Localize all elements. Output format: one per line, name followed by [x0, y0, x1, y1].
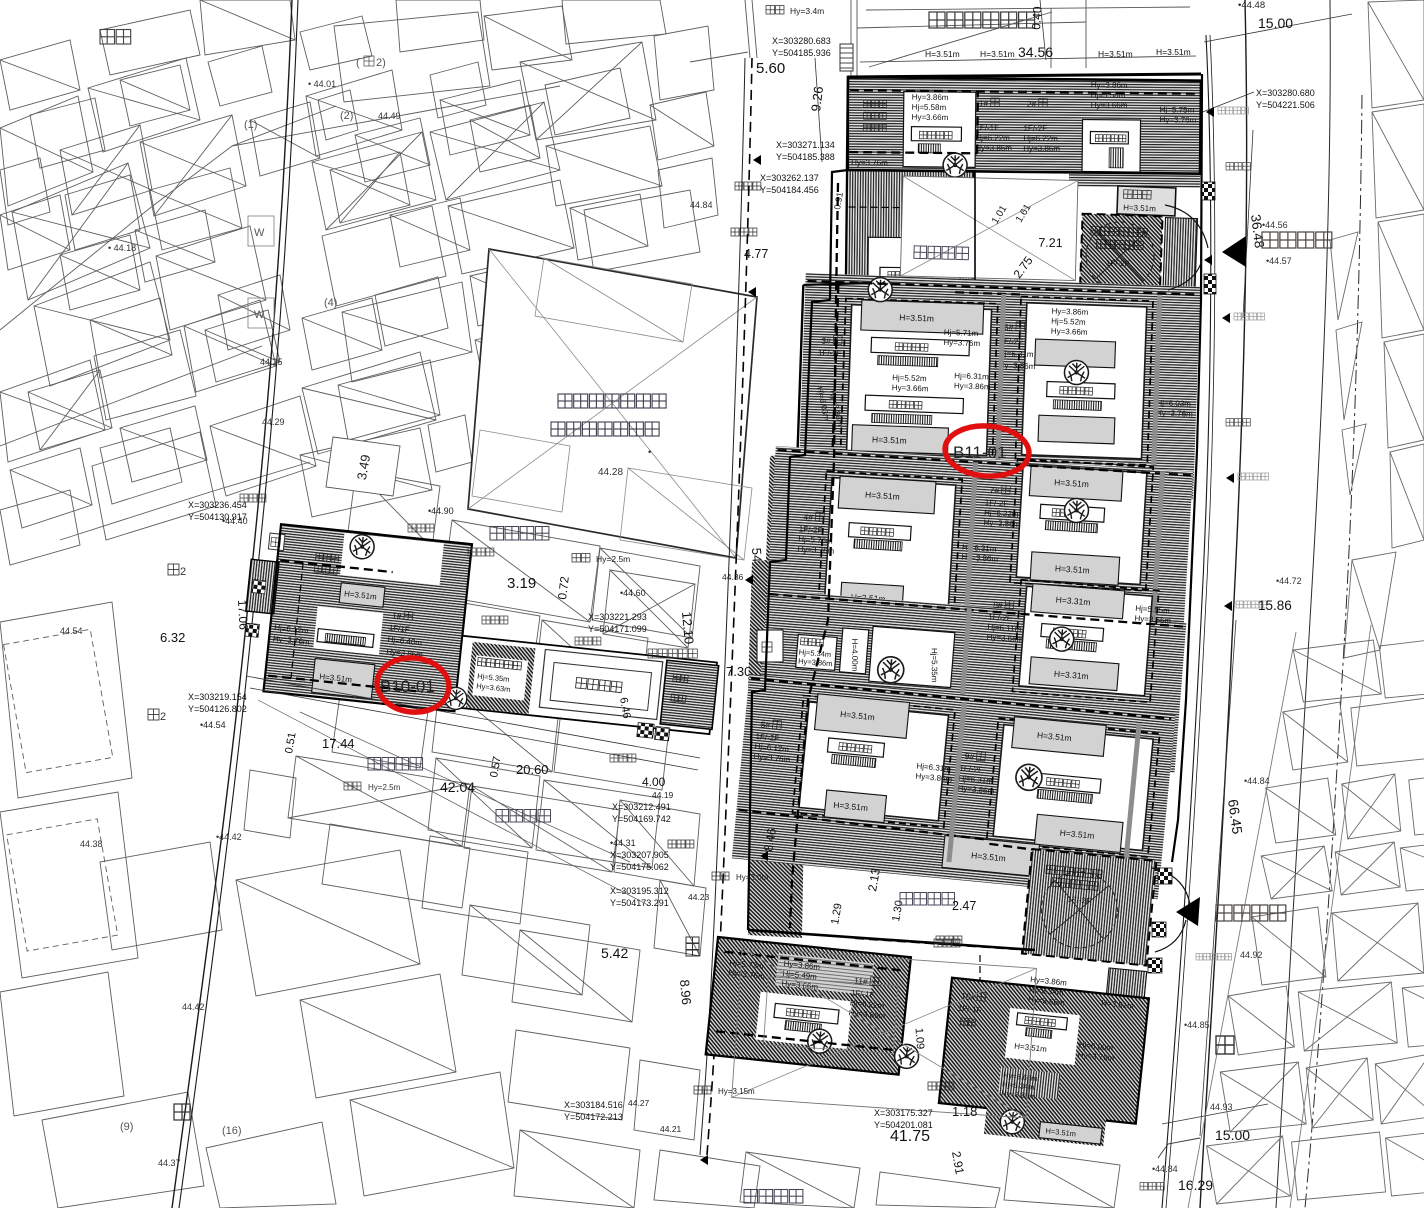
svg-text:44.21: 44.21 — [660, 1124, 682, 1134]
svg-text:1F/-2F: 1F/-2F — [985, 498, 1009, 508]
svg-text:X=303262.137: X=303262.137 — [760, 173, 819, 183]
svg-text:• 44.01: • 44.01 — [308, 79, 336, 89]
svg-text:(: ( — [356, 57, 360, 69]
svg-text:5.42: 5.42 — [601, 945, 628, 961]
svg-text:H=3.51m: H=3.51m — [1054, 477, 1089, 489]
svg-text:X=303280.680: X=303280.680 — [1256, 88, 1315, 98]
svg-text:44.92: 44.92 — [1240, 950, 1263, 960]
svg-text:Y=504221.506: Y=504221.506 — [1256, 100, 1315, 110]
svg-text:42.04: 42.04 — [440, 779, 475, 795]
svg-text:2#: 2# — [1027, 99, 1037, 109]
svg-text:44.54: 44.54 — [60, 626, 83, 636]
svg-text:(2): (2) — [340, 110, 353, 122]
svg-text:Hj=5.52m: Hj=5.52m — [1051, 317, 1086, 327]
svg-text:44.36: 44.36 — [722, 572, 744, 582]
svg-text:X=303280.683: X=303280.683 — [772, 36, 831, 46]
svg-text:•44.85: •44.85 — [1184, 1020, 1210, 1030]
svg-text:Hy=3.86m: Hy=3.86m — [1051, 307, 1088, 317]
svg-text:5.60: 5.60 — [756, 60, 785, 77]
svg-text:Y=504185.388: Y=504185.388 — [776, 152, 835, 162]
svg-text:Hy=3.15m: Hy=3.15m — [718, 1087, 755, 1096]
svg-text:2: 2 — [160, 711, 166, 723]
svg-text:Hy=3.0m: Hy=3.0m — [736, 873, 769, 882]
svg-text:3#: 3# — [821, 336, 831, 346]
svg-text:Hy=3.66m: Hy=3.66m — [892, 383, 929, 393]
svg-text:H=3.51m: H=3.51m — [1098, 49, 1133, 59]
svg-text:2: 2 — [180, 566, 186, 578]
svg-text:Hy=3.86m: Hy=3.86m — [975, 143, 1012, 152]
svg-text:•44.48: •44.48 — [1238, 0, 1265, 11]
svg-text:Hy=3.86m: Hy=3.86m — [912, 93, 949, 102]
svg-text:Hy=3.86m: Hy=3.86m — [954, 381, 991, 391]
svg-text:Hj=5.75m: Hj=5.75m — [1160, 105, 1195, 114]
svg-text:1F/-2F: 1F/-2F — [1023, 124, 1047, 133]
svg-text:•44.57: •44.57 — [1266, 256, 1292, 266]
svg-text:1F/-2F: 1F/-2F — [1106, 258, 1130, 268]
svg-text:Y=504172.213: Y=504172.213 — [564, 1112, 623, 1122]
svg-text:4.00: 4.00 — [642, 775, 666, 789]
svg-text:X=303219.154: X=303219.154 — [188, 692, 247, 702]
svg-text:•44.72: •44.72 — [1276, 576, 1302, 586]
svg-text:6.32: 6.32 — [160, 630, 185, 645]
svg-text:(4): (4) — [324, 297, 337, 309]
svg-text:Hj=6.31m: Hj=6.31m — [954, 371, 989, 381]
svg-text:•44.84: •44.84 — [1152, 1164, 1178, 1174]
svg-text:H=3.51m: H=3.51m — [872, 434, 907, 445]
svg-text:X=303212.491: X=303212.491 — [612, 802, 671, 812]
svg-text:X=303184.516: X=303184.516 — [564, 1100, 623, 1110]
svg-text:Hj=5.35m: Hj=5.35m — [930, 648, 939, 683]
svg-text:H=3.51m: H=3.51m — [980, 49, 1015, 59]
svg-text:W: W — [254, 227, 265, 239]
svg-text:44.23: 44.23 — [688, 892, 710, 902]
svg-text:2): 2) — [376, 57, 386, 69]
svg-text:9#: 9# — [964, 751, 975, 762]
svg-text:Y=504185.936: Y=504185.936 — [772, 48, 831, 58]
svg-text:H=3.51m: H=3.51m — [865, 490, 900, 502]
svg-text:•44.40: •44.40 — [222, 516, 248, 526]
svg-text:•44.60: •44.60 — [620, 588, 646, 598]
svg-text:Hj=5.58m: Hj=5.58m — [912, 103, 947, 112]
svg-text:(9): (9) — [120, 1121, 133, 1133]
svg-text:15.00: 15.00 — [1258, 15, 1293, 31]
svg-text:1#: 1# — [979, 98, 989, 108]
svg-text:Hy=3.76m: Hy=3.76m — [851, 158, 888, 167]
svg-text:Y=504175.062: Y=504175.062 — [610, 862, 669, 872]
svg-text:Hj=6.22m: Hj=6.22m — [975, 133, 1010, 142]
svg-text:Hy=3.76m: Hy=3.76m — [1156, 408, 1193, 418]
svg-text:41.75: 41.75 — [890, 1128, 930, 1145]
svg-text:1F/-1F: 1F/-1F — [975, 123, 999, 132]
svg-text:•44.54: •44.54 — [200, 720, 226, 730]
svg-text:16.29: 16.29 — [1178, 1177, 1213, 1193]
svg-text:Hy=3.86m: Hy=3.86m — [1023, 144, 1060, 153]
svg-text:20.60: 20.60 — [516, 762, 549, 777]
svg-text:10#: 10# — [961, 991, 976, 1002]
svg-text:Y=504173.291: Y=504173.291 — [610, 898, 669, 908]
svg-text:Hy=3.66m: Hy=3.66m — [1051, 327, 1088, 337]
svg-text:Hj=5.52m: Hj=5.52m — [892, 373, 927, 383]
svg-text:Hy=3.66m: Hy=3.66m — [912, 113, 949, 122]
svg-text:8#: 8# — [993, 600, 1003, 611]
svg-text:H=3.51m: H=3.51m — [899, 312, 934, 323]
svg-text:(16): (16) — [222, 1125, 242, 1137]
svg-text:6#: 6# — [1004, 322, 1014, 332]
svg-text:1#: 1# — [392, 610, 403, 621]
svg-text:11#: 11# — [854, 976, 869, 987]
svg-text:44.19: 44.19 — [652, 790, 674, 800]
svg-text:Y=504184.456: Y=504184.456 — [760, 185, 819, 195]
svg-text:44.27: 44.27 — [628, 1098, 650, 1108]
svg-text:44.29: 44.29 — [262, 417, 285, 427]
svg-text:X=303236.454: X=303236.454 — [188, 500, 247, 510]
svg-text:44.25: 44.25 — [260, 357, 283, 367]
svg-text:(1): (1) — [244, 119, 257, 131]
svg-text:12.10: 12.10 — [679, 611, 697, 645]
svg-text:X=303221.293: X=303221.293 — [588, 612, 647, 622]
svg-text:Y=504169.742: Y=504169.742 — [612, 814, 671, 824]
svg-text:H=4.00m: H=4.00m — [850, 639, 859, 672]
svg-text:Hy=3.4m: Hy=3.4m — [790, 6, 824, 16]
svg-text:44.93: 44.93 — [1210, 1102, 1233, 1112]
svg-text:Hy=2.5m: Hy=2.5m — [368, 783, 401, 792]
svg-text:X=303195.312: X=303195.312 — [610, 886, 669, 896]
svg-text:17.44: 17.44 — [322, 736, 355, 751]
svg-text:•44.56: •44.56 — [1262, 220, 1288, 230]
svg-text:3.19: 3.19 — [507, 575, 536, 592]
svg-text:•44.42: •44.42 — [216, 832, 242, 842]
svg-text:H=3.51m: H=3.51m — [1055, 563, 1090, 575]
svg-text:B10-01: B10-01 — [380, 677, 435, 696]
svg-text:Hj=6.03m: Hj=6.03m — [1156, 398, 1191, 408]
svg-text:B11-01: B11-01 — [953, 443, 1007, 462]
svg-text:X=303207.905: X=303207.905 — [610, 850, 669, 860]
svg-text:44.84: 44.84 — [690, 200, 713, 210]
svg-text:44.37: 44.37 — [158, 1158, 181, 1168]
svg-text:4#: 4# — [803, 512, 813, 523]
svg-text:Hj=5.71m: Hj=5.71m — [944, 328, 979, 338]
svg-text:8.96: 8.96 — [677, 979, 694, 1006]
svg-text:Hj=6.22m: Hj=6.22m — [1023, 134, 1058, 143]
svg-text:•44.31: •44.31 — [610, 838, 636, 848]
svg-text:7.21: 7.21 — [1038, 236, 1063, 251]
svg-text:•44.90: •44.90 — [428, 506, 454, 516]
svg-text:•44.84: •44.84 — [1244, 776, 1270, 786]
svg-text:17.06: 17.06 — [235, 599, 251, 630]
svg-text:Hy=3.76m: Hy=3.76m — [1160, 115, 1197, 124]
svg-text:5#: 5# — [760, 719, 771, 730]
svg-text:W: W — [254, 309, 265, 321]
svg-text:Hy=3.66m: Hy=3.66m — [1091, 101, 1128, 110]
svg-text:7.30: 7.30 — [726, 664, 751, 679]
svg-text:34.56: 34.56 — [1018, 44, 1053, 60]
svg-text:44.42: 44.42 — [182, 1002, 205, 1012]
svg-text:44.28: 44.28 — [598, 467, 623, 478]
svg-text:Y=504171.099: Y=504171.099 — [588, 624, 647, 634]
svg-text:X=303175.327: X=303175.327 — [874, 1108, 933, 1118]
svg-text:44.49: 44.49 — [378, 111, 401, 121]
svg-text:0.72: 0.72 — [555, 575, 572, 600]
svg-text:H=3.51m: H=3.51m — [1123, 203, 1156, 213]
svg-text:Hy=2.5m: Hy=2.5m — [596, 554, 630, 564]
svg-text:1F/-2F: 1F/-2F — [818, 348, 842, 358]
svg-text:H=3.51m: H=3.51m — [925, 49, 960, 59]
svg-text:44.38: 44.38 — [80, 839, 103, 849]
svg-text:Y=504126.802: Y=504126.802 — [188, 704, 247, 714]
svg-text:•: • — [648, 447, 651, 458]
svg-text:X=303271.134: X=303271.134 — [776, 140, 835, 150]
svg-text:1.18: 1.18 — [952, 1104, 977, 1119]
svg-text:H=3.51m: H=3.51m — [1156, 47, 1191, 57]
svg-text:7#: 7# — [989, 485, 999, 496]
svg-text:Hy=3.76m: Hy=3.76m — [943, 338, 980, 348]
svg-text:Hy=3.86m: Hy=3.86m — [999, 361, 1036, 371]
svg-text:1.09: 1.09 — [913, 1028, 926, 1050]
svg-text:1F/-2F: 1F/-2F — [799, 525, 823, 535]
svg-text:15.86: 15.86 — [1258, 598, 1292, 613]
svg-text:Hy=3.86m: Hy=3.86m — [1091, 81, 1128, 90]
svg-text:• 44.18: • 44.18 — [108, 243, 136, 253]
svg-text:2.47: 2.47 — [952, 899, 976, 913]
